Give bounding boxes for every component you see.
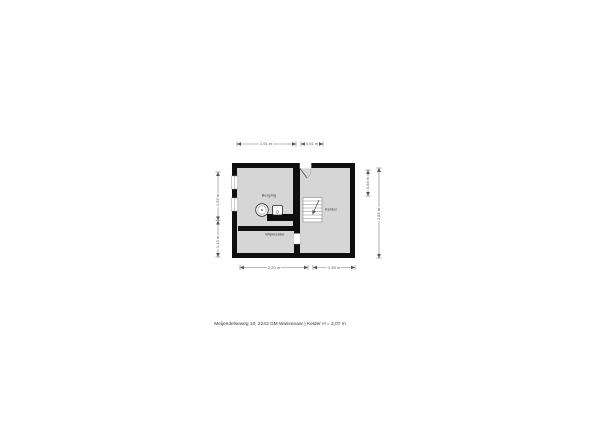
floorplan-page: Berging Kelder Wijnkelder 1,91 m 0,61 m …	[0, 0, 600, 424]
dimension-left-lower: 1,13 m	[216, 235, 220, 249]
floor-plan-drawing	[0, 0, 600, 424]
dimension-top-left: 1,91 m	[259, 142, 273, 146]
dimension-bottom-right: 1,39 m	[327, 266, 341, 270]
interior-wall-vertical	[293, 168, 300, 231]
plan-caption: Meijendelseweg 10, 2243 GM Wassenaar | K…	[214, 322, 346, 327]
room-label-cellar: Kelder	[325, 207, 337, 212]
stairs-icon	[303, 198, 322, 223]
dimension-bottom-left: 2,20 m	[267, 266, 281, 270]
dimension-right-outer: 2,85 m	[377, 207, 381, 221]
room-label-wine-cellar: Wijnkelder	[265, 232, 285, 237]
dimension-left-upper: 1,55 m	[216, 193, 220, 207]
boiler-icon	[256, 204, 269, 217]
window-icon	[231, 198, 238, 211]
dimension-right-inner: 0,84 m	[366, 176, 370, 190]
dimension-top-right: 0,61 m	[305, 142, 319, 146]
window-icon	[231, 176, 238, 189]
room-label-storage: Berging	[262, 193, 277, 198]
appliance-icon	[273, 206, 283, 216]
doorway-opening	[293, 234, 301, 245]
interior-wall-separator	[238, 226, 293, 231]
